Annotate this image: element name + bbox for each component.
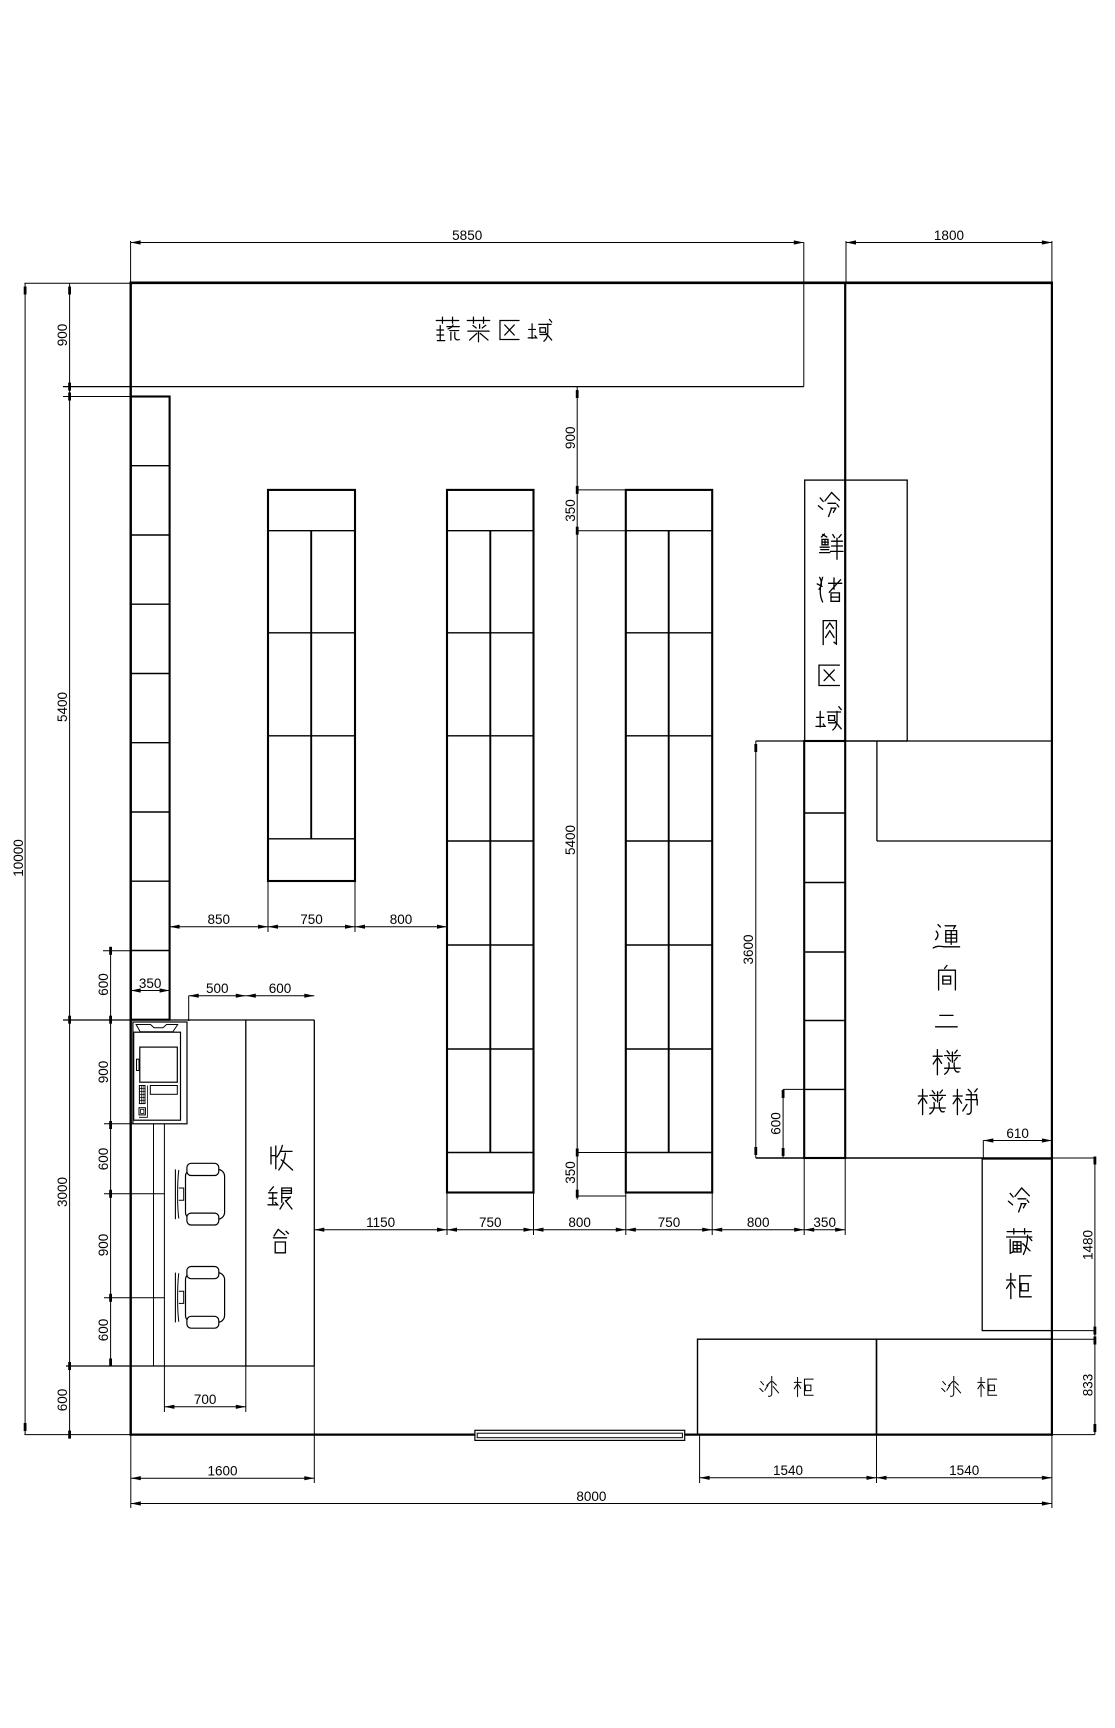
svg-text:900: 900 (55, 324, 70, 347)
svg-text:800: 800 (390, 912, 413, 927)
svg-text:3000: 3000 (55, 1177, 70, 1207)
svg-text:1540: 1540 (773, 1463, 803, 1478)
svg-text:700: 700 (194, 1392, 217, 1407)
svg-text:5850: 5850 (452, 228, 482, 243)
svg-text:750: 750 (479, 1215, 502, 1230)
svg-text:600: 600 (769, 1112, 784, 1135)
svg-text:500: 500 (206, 981, 229, 996)
svg-text:800: 800 (568, 1215, 591, 1230)
svg-text:600: 600 (55, 1389, 70, 1412)
svg-text:1800: 1800 (934, 228, 964, 243)
svg-text:8000: 8000 (576, 1489, 606, 1504)
svg-text:610: 610 (1006, 1126, 1029, 1141)
svg-text:1540: 1540 (949, 1463, 979, 1478)
svg-text:850: 850 (208, 912, 231, 927)
svg-text:1150: 1150 (366, 1215, 395, 1230)
svg-text:900: 900 (96, 1234, 111, 1257)
svg-text:600: 600 (96, 973, 111, 996)
svg-text:1480: 1480 (1080, 1230, 1095, 1260)
svg-text:5400: 5400 (563, 825, 578, 855)
svg-text:600: 600 (269, 981, 292, 996)
svg-text:350: 350 (813, 1215, 836, 1230)
svg-text:900: 900 (563, 427, 578, 450)
svg-text:1600: 1600 (208, 1464, 238, 1479)
svg-text:750: 750 (300, 912, 323, 927)
svg-text:10000: 10000 (11, 839, 26, 877)
svg-text:600: 600 (96, 1148, 111, 1171)
svg-text:800: 800 (747, 1215, 770, 1230)
svg-text:5400: 5400 (55, 692, 70, 722)
svg-text:3600: 3600 (741, 934, 756, 964)
svg-text:350: 350 (563, 1161, 578, 1184)
svg-text:750: 750 (658, 1215, 681, 1230)
svg-text:833: 833 (1080, 1374, 1095, 1397)
svg-text:900: 900 (96, 1061, 111, 1084)
svg-text:600: 600 (96, 1319, 111, 1342)
svg-text:350: 350 (563, 499, 578, 522)
svg-text:350: 350 (139, 976, 162, 991)
